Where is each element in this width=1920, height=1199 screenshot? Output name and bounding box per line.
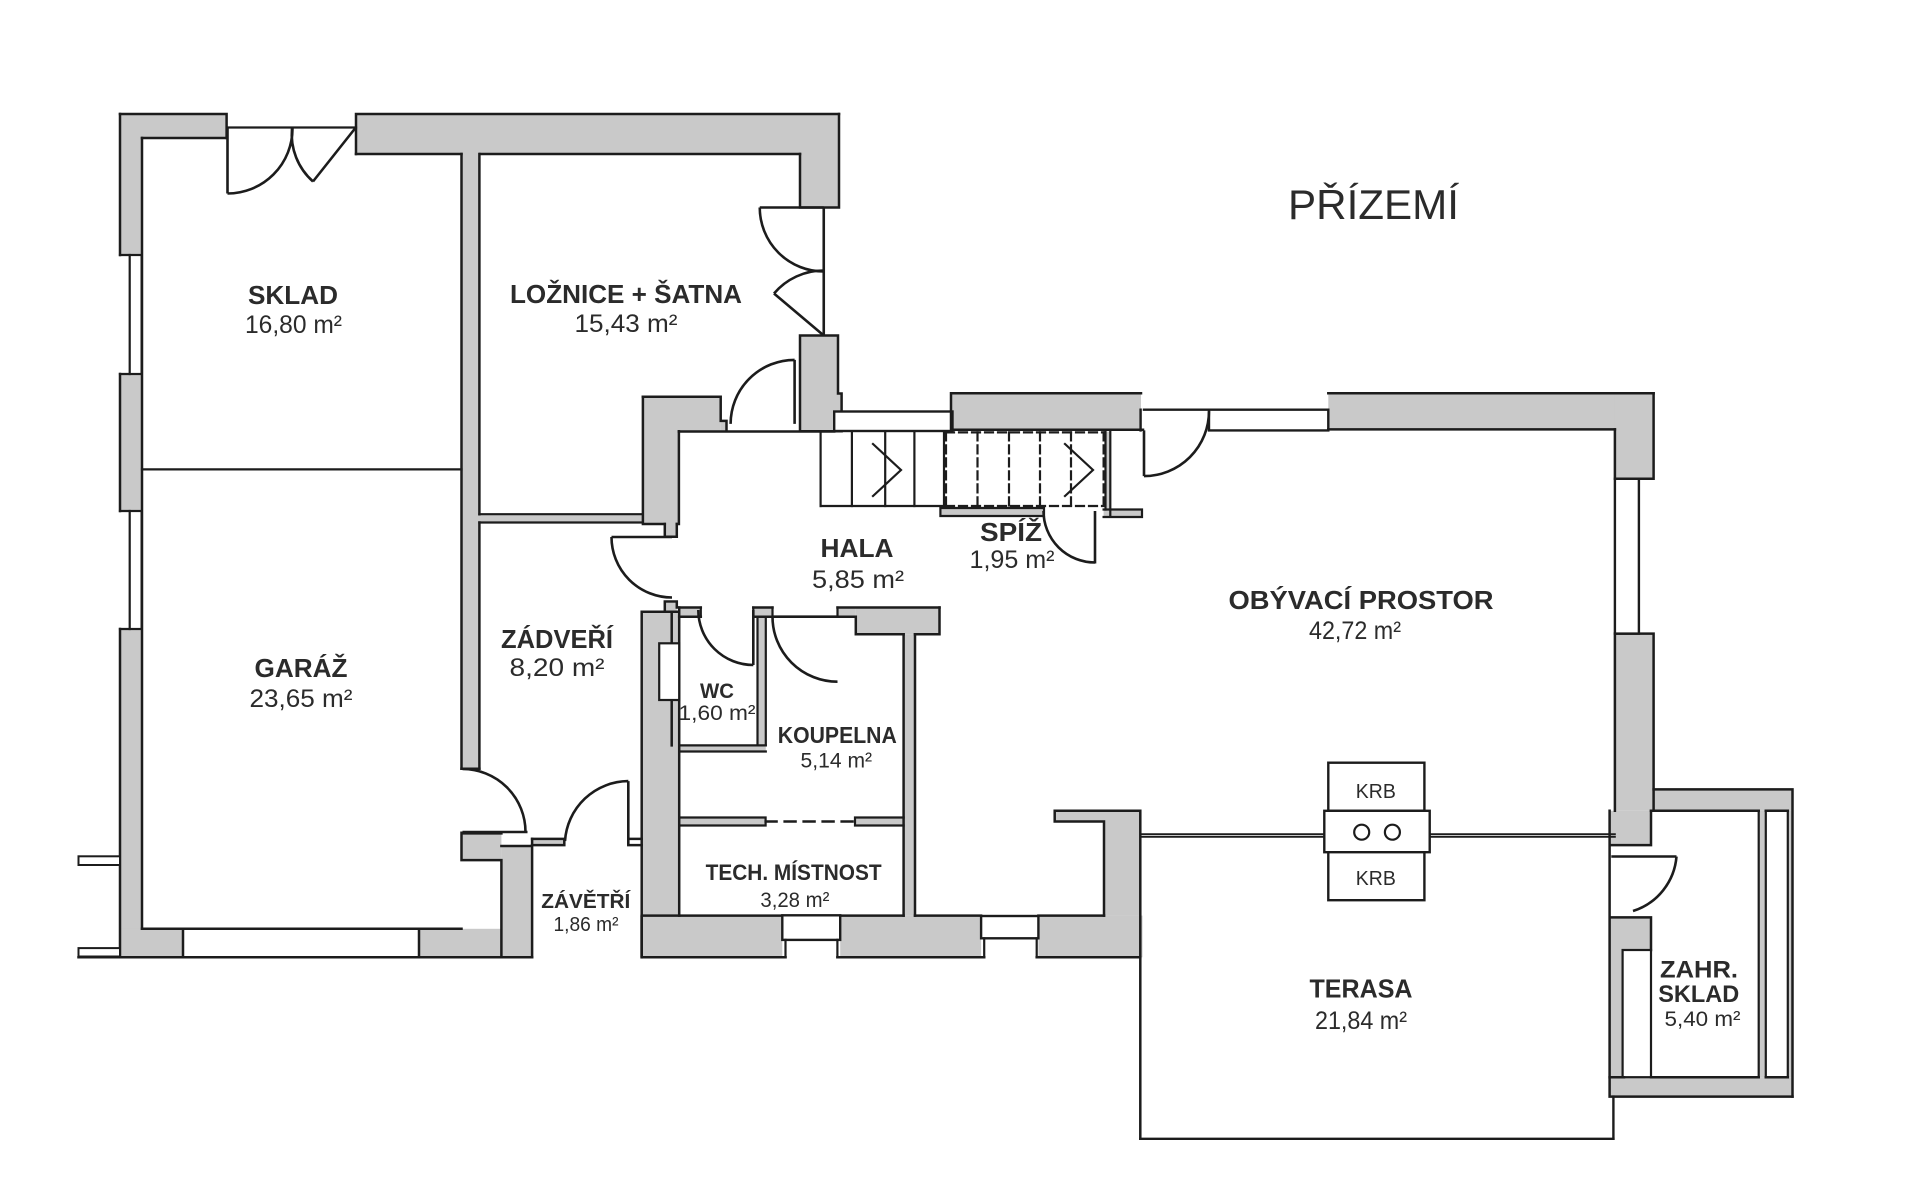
svg-text:16,80 m²: 16,80 m² [245,311,342,339]
svg-text:1,60 m²: 1,60 m² [679,702,756,725]
svg-text:SPÍŽ: SPÍŽ [980,517,1042,547]
svg-text:KRB: KRB [1356,781,1396,803]
svg-text:15,43 m²: 15,43 m² [575,310,678,338]
svg-text:1,86 m²: 1,86 m² [554,914,619,936]
svg-text:8,20 m²: 8,20 m² [510,654,605,682]
svg-text:5,85 m²: 5,85 m² [812,566,904,594]
svg-text:21,84 m²: 21,84 m² [1315,1007,1407,1035]
svg-text:GARÁŽ: GARÁŽ [255,653,348,683]
svg-text:5,14 m²: 5,14 m² [801,750,873,773]
svg-text:TERASA: TERASA [1310,974,1413,1004]
svg-text:HALA: HALA [821,533,894,563]
svg-text:OBÝVACÍ PROSTOR: OBÝVACÍ PROSTOR [1229,585,1494,615]
svg-text:42,72 m²: 42,72 m² [1309,617,1401,645]
svg-text:TECH. MÍSTNOST: TECH. MÍSTNOST [706,860,883,885]
svg-text:LOŽNICE + ŠATNA: LOŽNICE + ŠATNA [510,279,742,309]
svg-text:KRB: KRB [1356,868,1396,890]
svg-text:WC: WC [700,680,734,703]
svg-text:ZAHR.: ZAHR. [1660,957,1738,984]
svg-text:PŘÍZEMÍ: PŘÍZEMÍ [1288,181,1459,228]
svg-text:ZÁDVEŘÍ: ZÁDVEŘÍ [501,624,614,654]
svg-text:ZÁVĚTŘÍ: ZÁVĚTŘÍ [541,889,630,913]
svg-text:SKLAD: SKLAD [1658,981,1739,1008]
svg-text:5,40 m²: 5,40 m² [1665,1008,1741,1031]
svg-text:KOUPELNA: KOUPELNA [778,722,897,748]
svg-text:23,65 m²: 23,65 m² [250,685,353,713]
svg-text:SKLAD: SKLAD [248,280,338,310]
svg-text:3,28 m²: 3,28 m² [760,889,829,912]
svg-text:1,95 m²: 1,95 m² [970,546,1055,574]
